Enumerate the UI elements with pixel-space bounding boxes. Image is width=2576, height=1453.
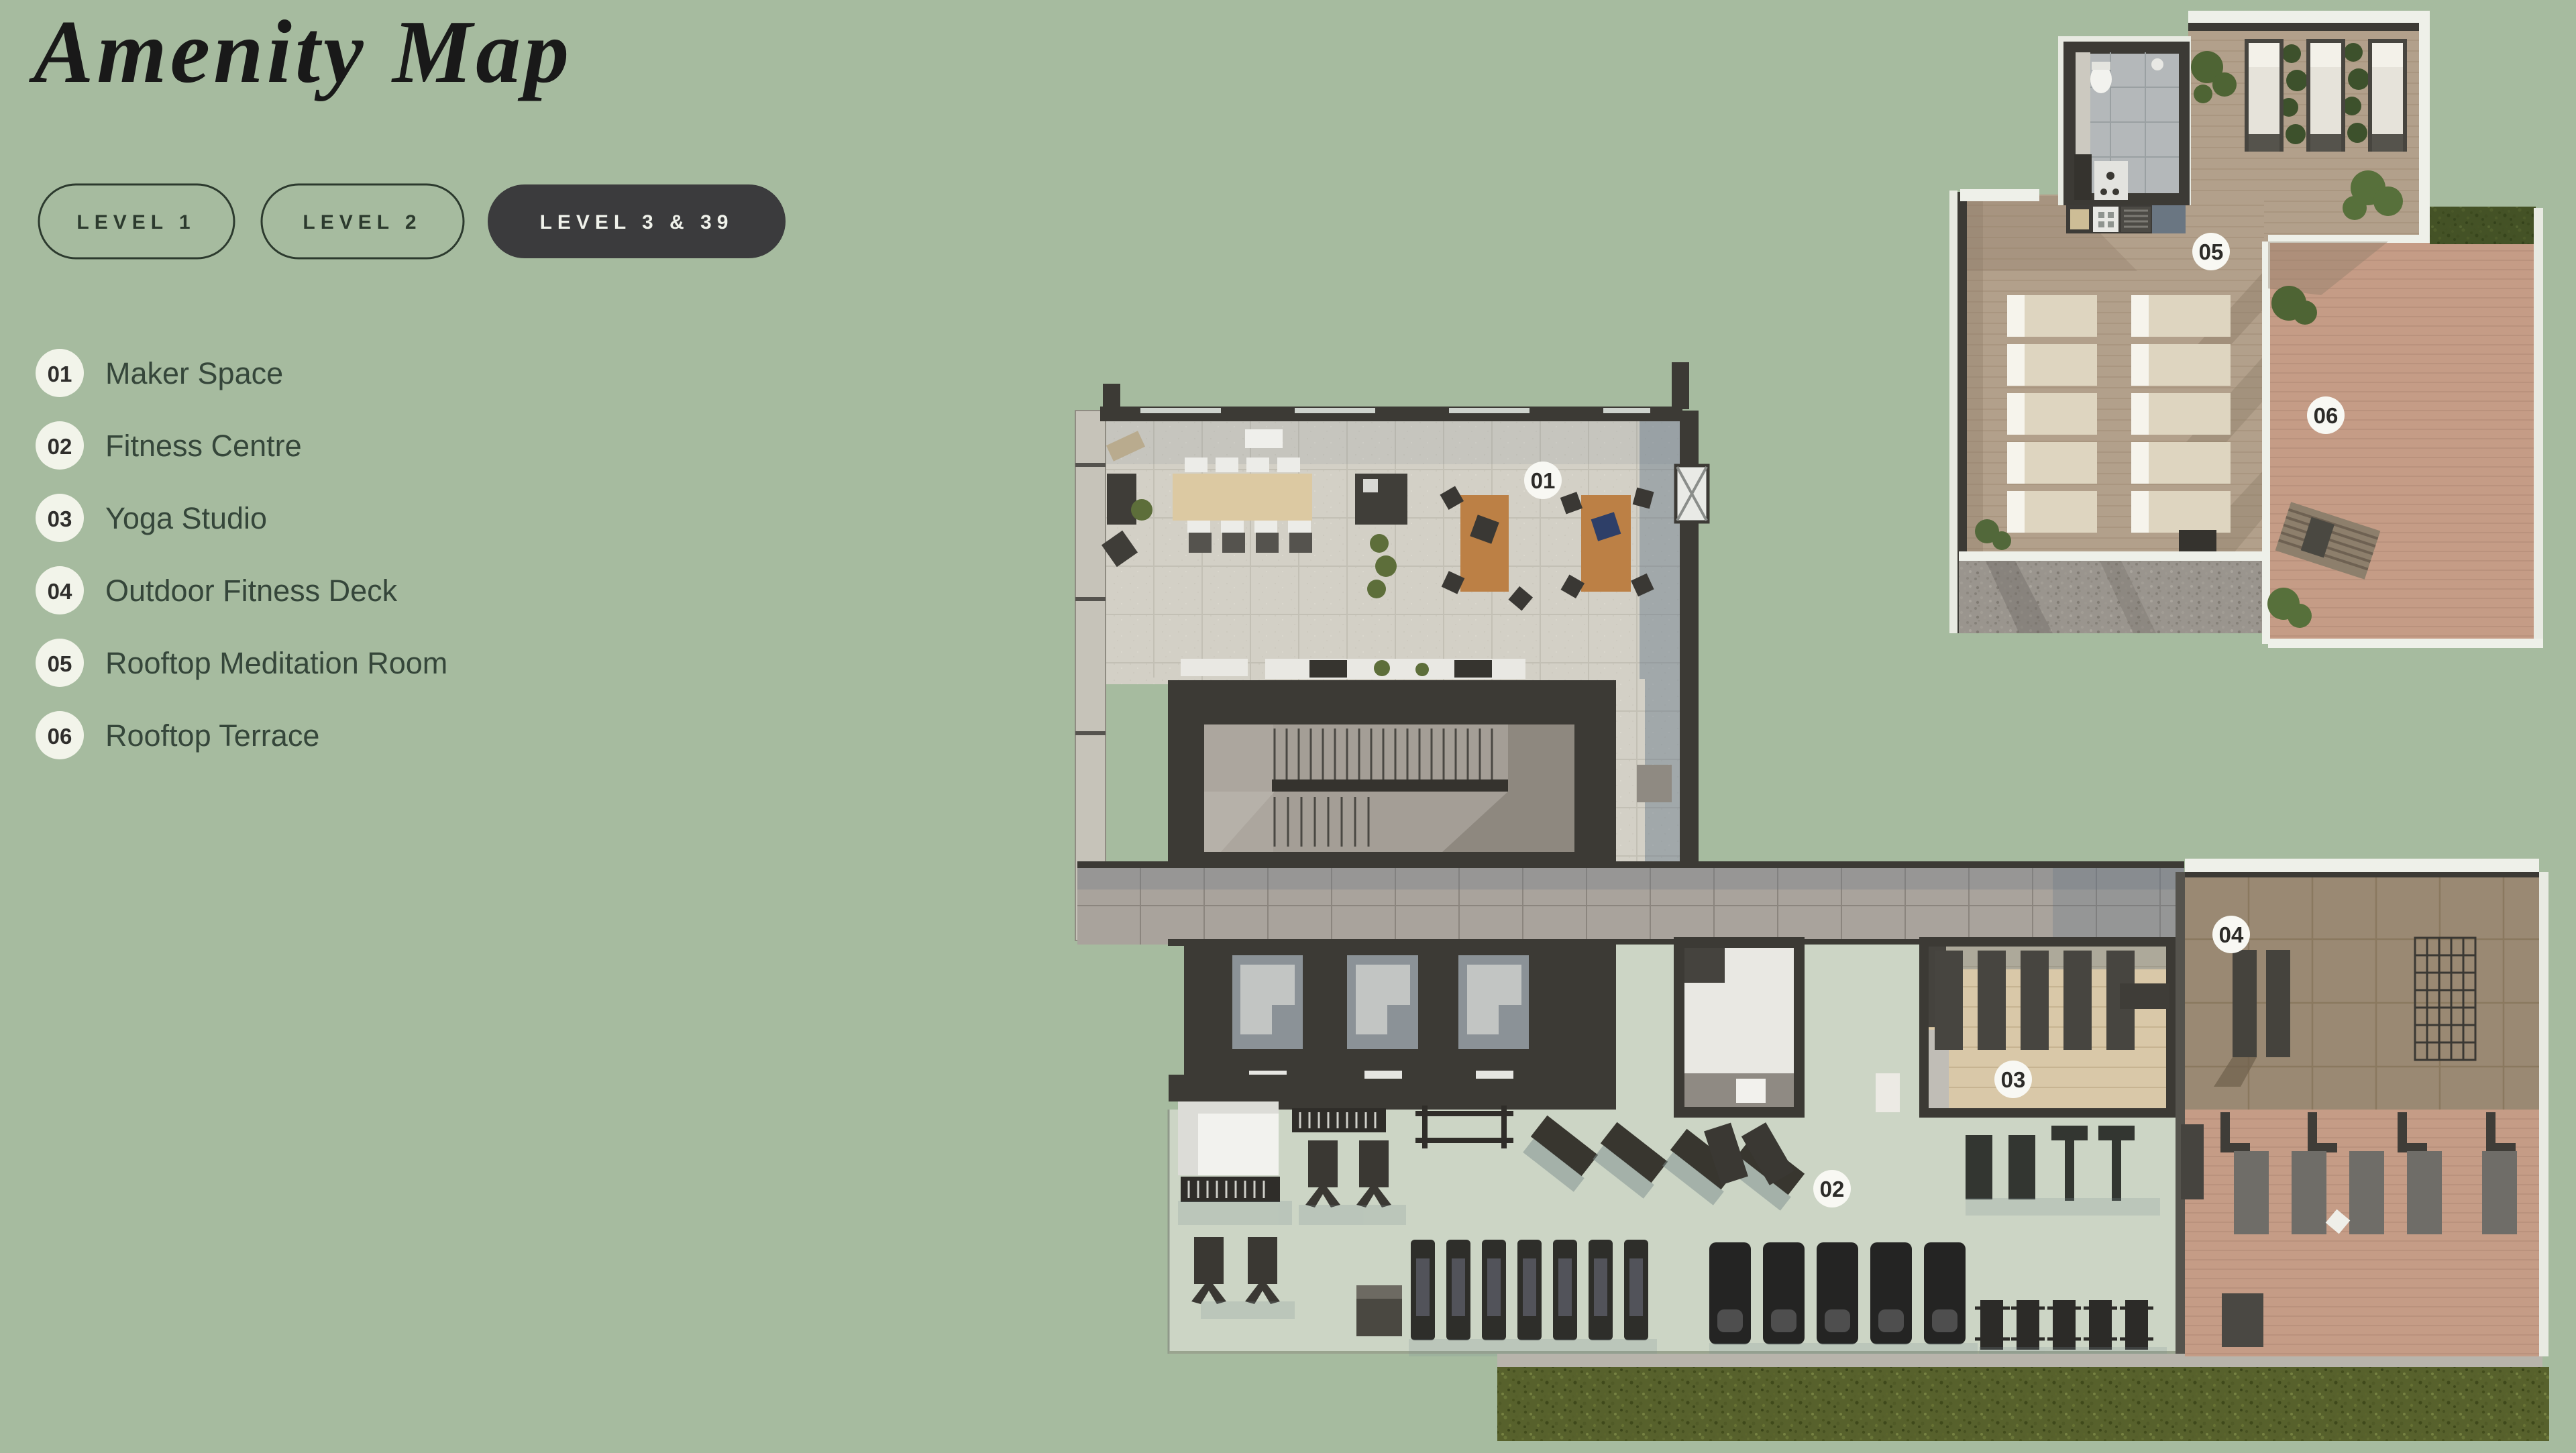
- svg-text:04: 04: [48, 579, 72, 604]
- svg-text:04: 04: [2219, 922, 2244, 947]
- svg-text:LEVEL 3 & 39: LEVEL 3 & 39: [540, 211, 734, 233]
- svg-text:02: 02: [48, 434, 72, 459]
- svg-text:Fitness Centre: Fitness Centre: [105, 429, 302, 463]
- svg-text:05: 05: [2199, 239, 2224, 264]
- svg-text:LEVEL 2: LEVEL 2: [303, 211, 421, 233]
- svg-text:01: 01: [1531, 468, 1556, 493]
- svg-text:Yoga Studio: Yoga Studio: [105, 501, 267, 535]
- svg-text:05: 05: [48, 651, 72, 676]
- svg-text:Outdoor Fitness Deck: Outdoor Fitness Deck: [105, 574, 398, 608]
- svg-text:LEVEL 1: LEVEL 1: [76, 211, 195, 233]
- svg-text:06: 06: [2314, 403, 2339, 428]
- svg-text:03: 03: [48, 506, 72, 531]
- svg-text:Maker Space: Maker Space: [105, 356, 283, 390]
- svg-text:Amenity Map: Amenity Map: [29, 2, 572, 101]
- svg-text:06: 06: [48, 724, 72, 749]
- svg-text:01: 01: [48, 362, 72, 386]
- svg-text:Rooftop Meditation Room: Rooftop Meditation Room: [105, 646, 447, 680]
- svg-text:03: 03: [2001, 1067, 2026, 1092]
- svg-text:Rooftop Terrace: Rooftop Terrace: [105, 718, 319, 753]
- svg-text:02: 02: [1820, 1177, 1845, 1201]
